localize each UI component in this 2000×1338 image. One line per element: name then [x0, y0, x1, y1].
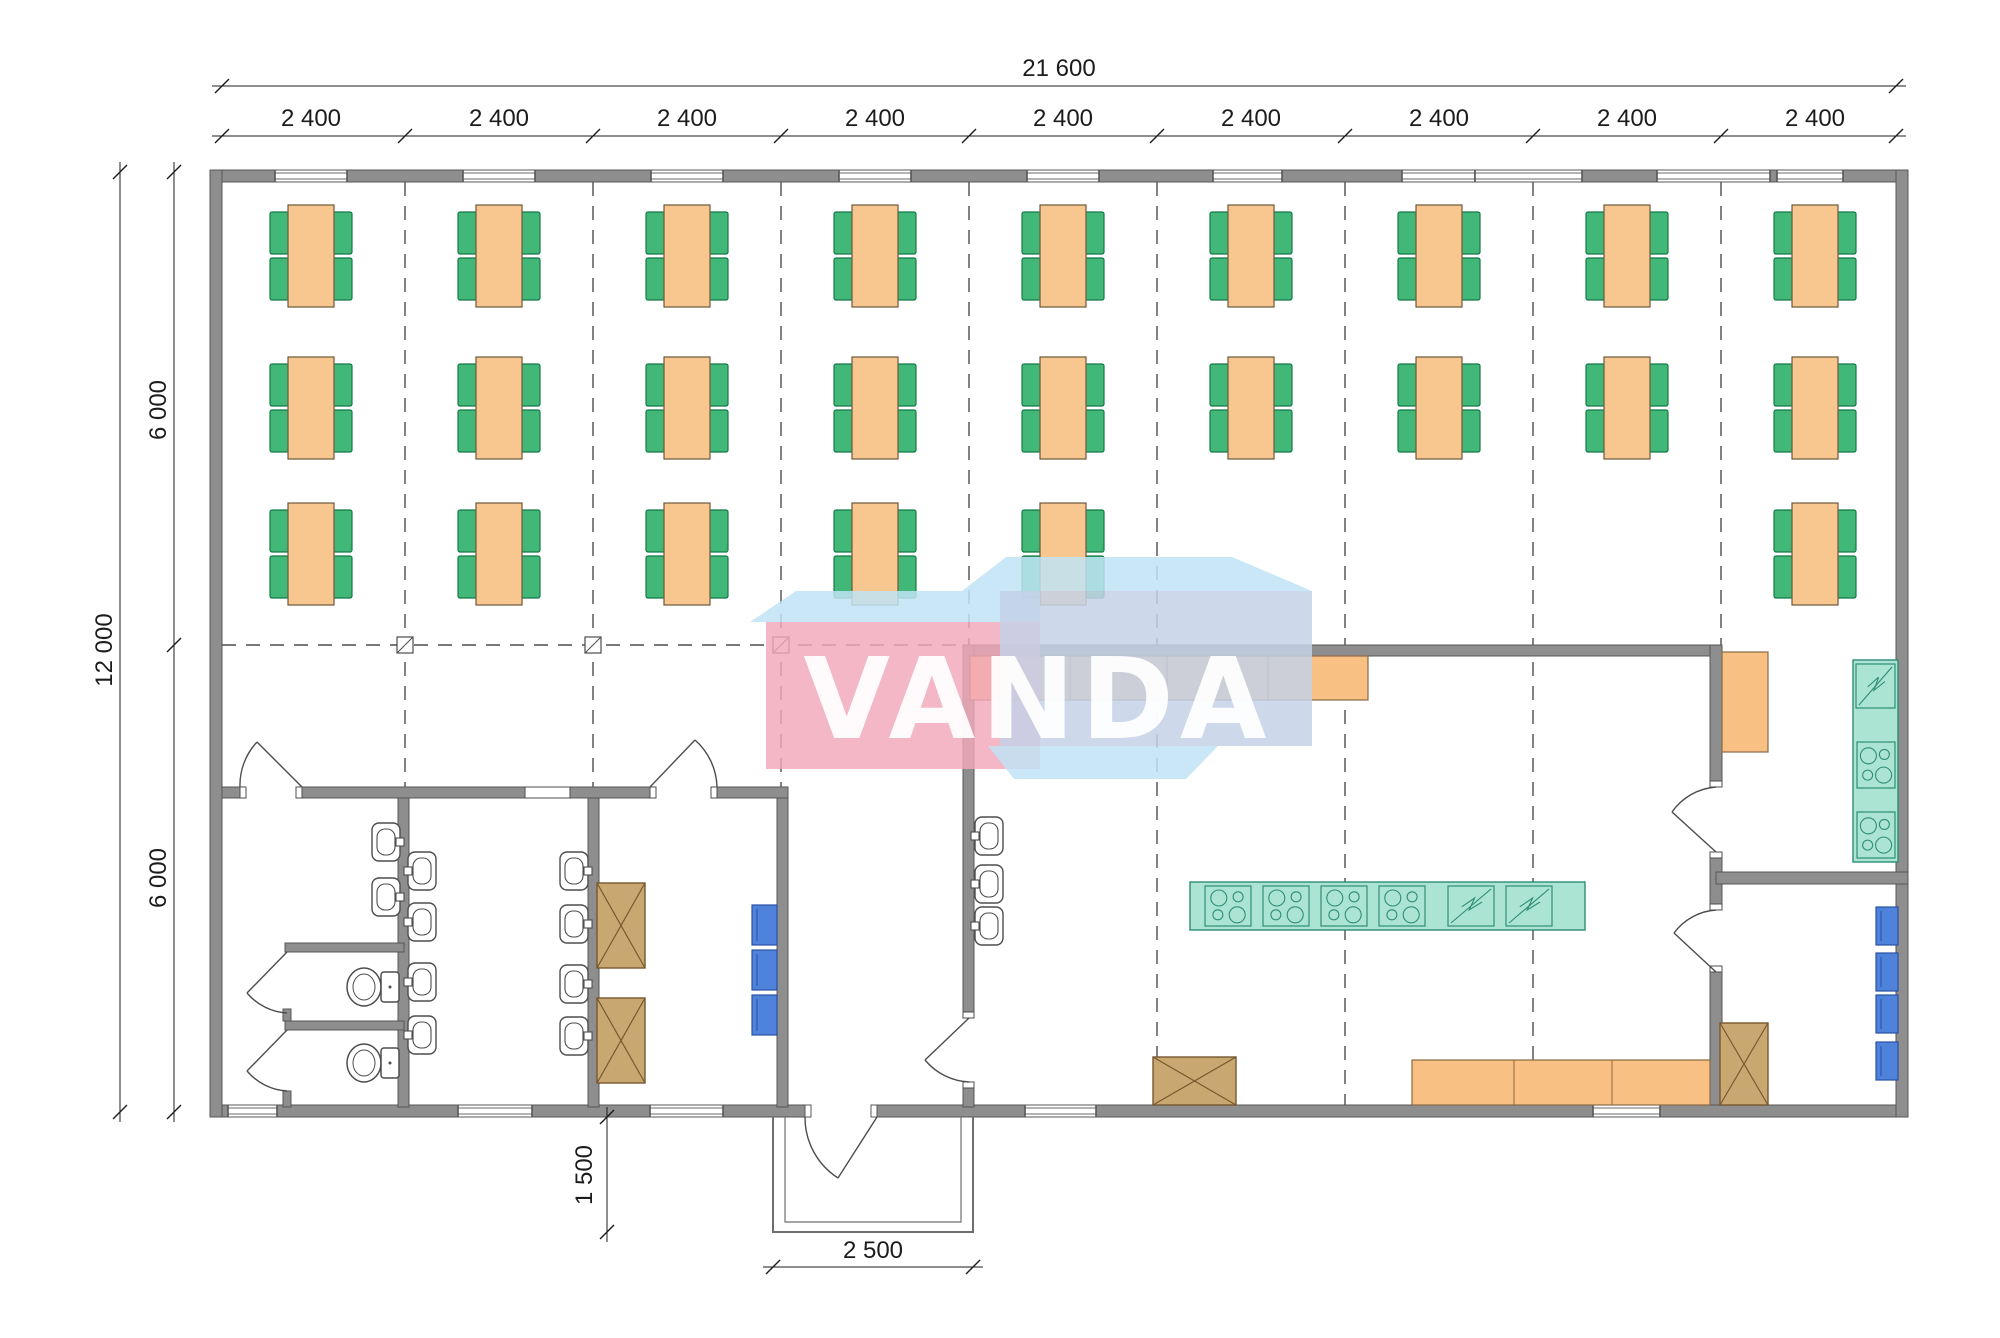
door-leaf-hall-to-kitchen	[925, 1018, 969, 1060]
toilet	[347, 1044, 399, 1082]
table	[1792, 503, 1838, 605]
chair	[458, 556, 477, 598]
wall-corridor-stub-left	[222, 787, 240, 798]
chair	[1837, 364, 1856, 406]
dining-table-group	[834, 357, 916, 459]
sink	[560, 965, 592, 1003]
sink	[560, 905, 592, 943]
dim-bay-4: 2 400	[845, 105, 905, 132]
chair	[458, 510, 477, 552]
door-leaf-stall-2	[247, 1030, 287, 1071]
shelf-unit	[752, 950, 777, 990]
window	[228, 1106, 277, 1117]
storage-cabinet-orange	[1722, 652, 1768, 752]
dim-bay-6: 2 400	[1221, 105, 1281, 132]
dim-half-top: 6 000	[145, 380, 172, 440]
wall-corridor-b	[570, 787, 650, 798]
sink	[372, 823, 404, 861]
chair	[1210, 212, 1229, 254]
chair	[1774, 410, 1793, 452]
chair	[1774, 258, 1793, 300]
chair	[458, 212, 477, 254]
chair	[1273, 212, 1292, 254]
window	[458, 1106, 532, 1117]
chair	[1837, 556, 1856, 598]
sanitary-fixtures	[347, 817, 1003, 1082]
chair	[709, 556, 728, 598]
chair	[333, 510, 352, 552]
chair	[521, 258, 540, 300]
chair	[1022, 258, 1041, 300]
table	[1228, 205, 1274, 307]
entrance-porch	[773, 1117, 973, 1232]
table	[1416, 205, 1462, 307]
porch-outer-outline	[773, 1117, 973, 1232]
dining-table-group	[458, 357, 540, 459]
chair	[1273, 258, 1292, 300]
chair	[897, 364, 916, 406]
chair	[646, 212, 665, 254]
chair	[1085, 410, 1104, 452]
chair	[1273, 364, 1292, 406]
chair	[1586, 258, 1605, 300]
chair	[1085, 258, 1104, 300]
porch-inner-outline	[785, 1117, 961, 1222]
chair	[270, 510, 289, 552]
door-jamb	[1710, 781, 1722, 787]
dim-bay-1: 2 400	[281, 105, 341, 132]
table	[476, 503, 522, 605]
chair	[270, 364, 289, 406]
sink-faucet	[584, 980, 592, 988]
table	[1604, 357, 1650, 459]
chair	[1586, 410, 1605, 452]
dining-table-group	[270, 357, 352, 459]
sink-faucet	[584, 867, 592, 875]
wall-left	[210, 170, 222, 1117]
dining-table-group	[1586, 205, 1668, 307]
dining-table-group	[270, 503, 352, 605]
shelf-unit	[1876, 953, 1898, 991]
sink-basin-inner	[565, 971, 583, 997]
shelf-unit	[1876, 995, 1898, 1033]
sink-faucet	[971, 922, 979, 930]
chair	[1837, 410, 1856, 452]
table	[1792, 357, 1838, 459]
chair	[521, 212, 540, 254]
chair	[646, 258, 665, 300]
table	[476, 205, 522, 307]
shelf-unit	[1876, 907, 1898, 945]
entrance-opening	[805, 1104, 877, 1118]
chair	[897, 212, 916, 254]
chair	[1774, 212, 1793, 254]
sink-faucet	[404, 918, 412, 926]
door-jamb	[805, 1105, 811, 1117]
window	[463, 171, 535, 182]
window	[275, 171, 347, 182]
chair	[1586, 212, 1605, 254]
chair	[1398, 212, 1417, 254]
wall-right-rooms-horizontal	[1716, 872, 1908, 884]
shelf-unit	[1876, 1042, 1898, 1080]
chair	[333, 258, 352, 300]
dining-table-group	[1774, 357, 1856, 459]
door-jamb	[963, 1082, 974, 1088]
washroom-cased-opening	[525, 787, 570, 798]
dining-table-group	[458, 503, 540, 605]
sink-basin-inner	[413, 1022, 431, 1048]
sink-faucet	[971, 832, 979, 840]
sink-basin-inner	[565, 911, 583, 937]
chair	[1085, 364, 1104, 406]
door-leaf-stall-1	[247, 952, 287, 993]
door-jamb	[1710, 852, 1722, 858]
chair	[1837, 212, 1856, 254]
window	[651, 171, 723, 182]
table	[1040, 205, 1086, 307]
dim-bay-7: 2 400	[1409, 105, 1469, 132]
dining-table-group	[1398, 205, 1480, 307]
dim-bay-8: 2 400	[1597, 105, 1657, 132]
door-leaf-kitchen-to-right-bottom-room	[1674, 933, 1716, 972]
chair	[1273, 410, 1292, 452]
window	[650, 1106, 723, 1117]
door-jamb	[296, 787, 302, 798]
chair	[333, 364, 352, 406]
chair	[897, 258, 916, 300]
table	[852, 205, 898, 307]
chair	[1085, 212, 1104, 254]
dim-half-bottom: 6 000	[145, 848, 172, 908]
door-arc-kitchen-to-right-bottom-room	[1674, 910, 1716, 933]
chair	[1649, 364, 1668, 406]
door-arc-entrance	[805, 1117, 838, 1178]
chair	[834, 212, 853, 254]
chair	[1022, 364, 1041, 406]
window	[1777, 171, 1843, 182]
sink	[404, 963, 436, 1001]
chair	[646, 410, 665, 452]
chair	[333, 212, 352, 254]
entrance-gap	[805, 1104, 877, 1118]
dim-overall-height: 12 000	[91, 613, 118, 686]
door-arc-hall-to-kitchen	[925, 1060, 969, 1082]
sink	[560, 852, 592, 890]
chair	[1022, 410, 1041, 452]
chair	[1398, 364, 1417, 406]
chair	[897, 410, 916, 452]
chair	[1461, 364, 1480, 406]
chair	[1022, 212, 1041, 254]
chair	[646, 364, 665, 406]
dining-table-group	[1774, 205, 1856, 307]
door-leaf-kitchen-to-right-top-room	[1672, 812, 1716, 852]
door-arc-hall-to-vestibule	[695, 740, 717, 787]
chair	[521, 556, 540, 598]
door-arc-hall-to-wc	[240, 742, 257, 787]
sink-faucet	[584, 1032, 592, 1040]
sink-faucet	[584, 920, 592, 928]
watermark-text: VANDA	[803, 635, 1272, 765]
dining-table-group	[1774, 503, 1856, 605]
chair	[1398, 410, 1417, 452]
door-jamb	[650, 787, 656, 798]
sink	[560, 1017, 592, 1055]
sink	[971, 817, 1003, 855]
watermark-sky-band-right	[962, 557, 1232, 591]
dim-bay-3: 2 400	[657, 105, 717, 132]
door-jamb	[1710, 904, 1722, 910]
dining-table-group	[646, 205, 728, 307]
chair	[646, 556, 665, 598]
chair	[834, 410, 853, 452]
table	[1604, 205, 1650, 307]
sink-basin-inner	[980, 823, 998, 849]
sink	[971, 865, 1003, 903]
door-leaf-hall-to-wc	[257, 742, 302, 787]
wall-stall-2	[285, 1021, 404, 1030]
chair	[1210, 410, 1229, 452]
shelf-unit	[752, 995, 777, 1035]
dim-overall-width: 21 600	[1022, 55, 1095, 82]
chair	[1022, 510, 1041, 552]
sink	[404, 852, 436, 890]
chair	[834, 364, 853, 406]
chair	[458, 258, 477, 300]
dining-table-group	[1398, 357, 1480, 459]
dining-table-group	[1210, 357, 1292, 459]
chair	[646, 510, 665, 552]
window	[839, 171, 911, 182]
table	[288, 205, 334, 307]
sink-basin-inner	[565, 858, 583, 884]
chair	[1586, 364, 1605, 406]
sink	[404, 903, 436, 941]
chair	[709, 410, 728, 452]
sink-faucet	[404, 867, 412, 875]
chair	[270, 212, 289, 254]
dining-table-group	[646, 357, 728, 459]
cooktop	[1379, 886, 1425, 926]
door-leaf-hall-to-vestibule	[650, 740, 695, 787]
chair	[270, 258, 289, 300]
toilet	[347, 968, 399, 1006]
chair	[1774, 510, 1793, 552]
chair	[1649, 410, 1668, 452]
dining-table-group	[270, 205, 352, 307]
shelf-unit	[752, 905, 777, 945]
sink-basin-inner	[413, 858, 431, 884]
chair	[1774, 364, 1793, 406]
door-arc-stall-1	[247, 993, 287, 1013]
window	[1593, 1106, 1660, 1117]
chair	[333, 410, 352, 452]
dining-table-group	[1210, 205, 1292, 307]
chair	[458, 410, 477, 452]
chair	[1085, 510, 1104, 552]
table	[476, 357, 522, 459]
table	[664, 357, 710, 459]
table	[852, 503, 898, 605]
sink-faucet	[971, 880, 979, 888]
chair	[333, 556, 352, 598]
chair	[521, 510, 540, 552]
sink-basin-inner	[980, 913, 998, 939]
chair	[709, 258, 728, 300]
table	[1792, 205, 1838, 307]
toilet-button	[389, 1062, 392, 1065]
dim-porch-depth: 1 500	[571, 1145, 598, 1205]
cooktop	[1321, 886, 1367, 926]
door-arc-stall-2	[247, 1071, 287, 1091]
sink-faucet	[404, 978, 412, 986]
chair	[1210, 364, 1229, 406]
window	[1657, 171, 1770, 182]
window	[1025, 1106, 1096, 1117]
table	[664, 205, 710, 307]
dim-bay-2: 2 400	[469, 105, 529, 132]
cooktop	[1263, 886, 1309, 926]
dining-table-group	[1022, 205, 1104, 307]
wall-corridor-a	[302, 787, 525, 798]
table	[664, 503, 710, 605]
dining-table-group	[834, 205, 916, 307]
dining-table-group	[1586, 357, 1668, 459]
chair	[1398, 258, 1417, 300]
window	[1475, 171, 1582, 182]
kitchen-counter-bottom	[1412, 1060, 1710, 1105]
floor-plan-canvas: 21 600 2 400 2 400 2 400 2 400 2 400 2 4…	[0, 0, 2000, 1338]
chair	[709, 364, 728, 406]
window	[1027, 171, 1099, 182]
window	[1402, 171, 1475, 182]
chair	[897, 510, 916, 552]
chair	[1837, 258, 1856, 300]
wall-stall-front-stub-1	[283, 1009, 291, 1021]
sink-basin-inner	[413, 909, 431, 935]
wall-stall-1	[285, 943, 404, 952]
chair	[709, 510, 728, 552]
toilet-bowl-inner	[353, 974, 375, 1000]
chair	[1837, 510, 1856, 552]
chair	[1461, 258, 1480, 300]
dining-table-group	[458, 205, 540, 307]
chair	[1649, 212, 1668, 254]
door-arc-kitchen-to-right-top-room	[1672, 787, 1716, 812]
sink-faucet	[396, 893, 404, 901]
dining-table-group	[646, 503, 728, 605]
door-jamb	[963, 1012, 974, 1018]
chair	[1774, 556, 1793, 598]
dim-porch-width: 2 500	[843, 1237, 903, 1264]
chair	[834, 510, 853, 552]
chair	[834, 258, 853, 300]
door-jamb	[871, 1105, 877, 1117]
floor-plan-svg: 21 600 2 400 2 400 2 400 2 400 2 400 2 4…	[0, 0, 2000, 1338]
door-jamb	[240, 787, 246, 798]
dining-table-group	[834, 503, 916, 605]
table	[852, 357, 898, 459]
window	[1213, 171, 1282, 182]
sink-basin-inner	[565, 1023, 583, 1049]
door-jamb	[711, 787, 717, 798]
table	[1416, 357, 1462, 459]
chair	[521, 364, 540, 406]
dim-bay-9: 2 400	[1785, 105, 1845, 132]
wall-vestibule-right	[777, 790, 788, 1107]
sink	[372, 878, 404, 916]
chair	[1649, 258, 1668, 300]
chair	[458, 364, 477, 406]
sink-faucet	[396, 838, 404, 846]
chair	[1461, 410, 1480, 452]
dim-bay-5: 2 400	[1033, 105, 1093, 132]
wall-stall-front-stub-2	[283, 1091, 291, 1107]
chair	[709, 212, 728, 254]
sink-basin-inner	[377, 829, 395, 855]
dining-table-group	[1022, 357, 1104, 459]
watermark-sky-corner	[1232, 557, 1312, 591]
table	[1040, 357, 1086, 459]
table	[288, 503, 334, 605]
chair	[270, 410, 289, 452]
chair	[1210, 258, 1229, 300]
table	[1228, 357, 1274, 459]
chair	[1461, 212, 1480, 254]
door-leaf-entrance	[838, 1117, 877, 1178]
watermark-sky-band-left	[750, 591, 1040, 622]
cooktop	[1205, 886, 1251, 926]
chair	[270, 556, 289, 598]
sink	[971, 907, 1003, 945]
sink-basin-inner	[413, 969, 431, 995]
chair	[521, 410, 540, 452]
table	[288, 357, 334, 459]
toilet-button	[389, 986, 392, 989]
sink-faucet	[404, 1031, 412, 1039]
sink-basin-inner	[377, 884, 395, 910]
toilet-bowl-inner	[353, 1050, 375, 1076]
sink-basin-inner	[980, 871, 998, 897]
wall-corridor-c	[717, 787, 788, 798]
sink	[404, 1016, 436, 1054]
wall-right-rooms-a	[1710, 645, 1722, 787]
